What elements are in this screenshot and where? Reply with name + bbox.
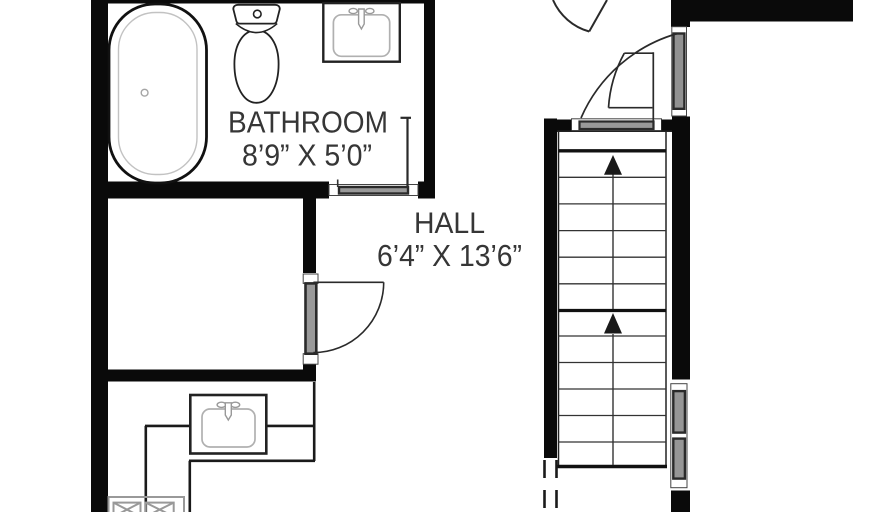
svg-text:HALL: HALL: [414, 207, 485, 240]
svg-text:BATHROOM: BATHROOM: [228, 105, 388, 140]
svg-text:8’9” X 5’0”: 8’9” X 5’0”: [242, 138, 372, 173]
svg-text:6’4” X 13’6”: 6’4” X 13’6”: [377, 238, 522, 273]
